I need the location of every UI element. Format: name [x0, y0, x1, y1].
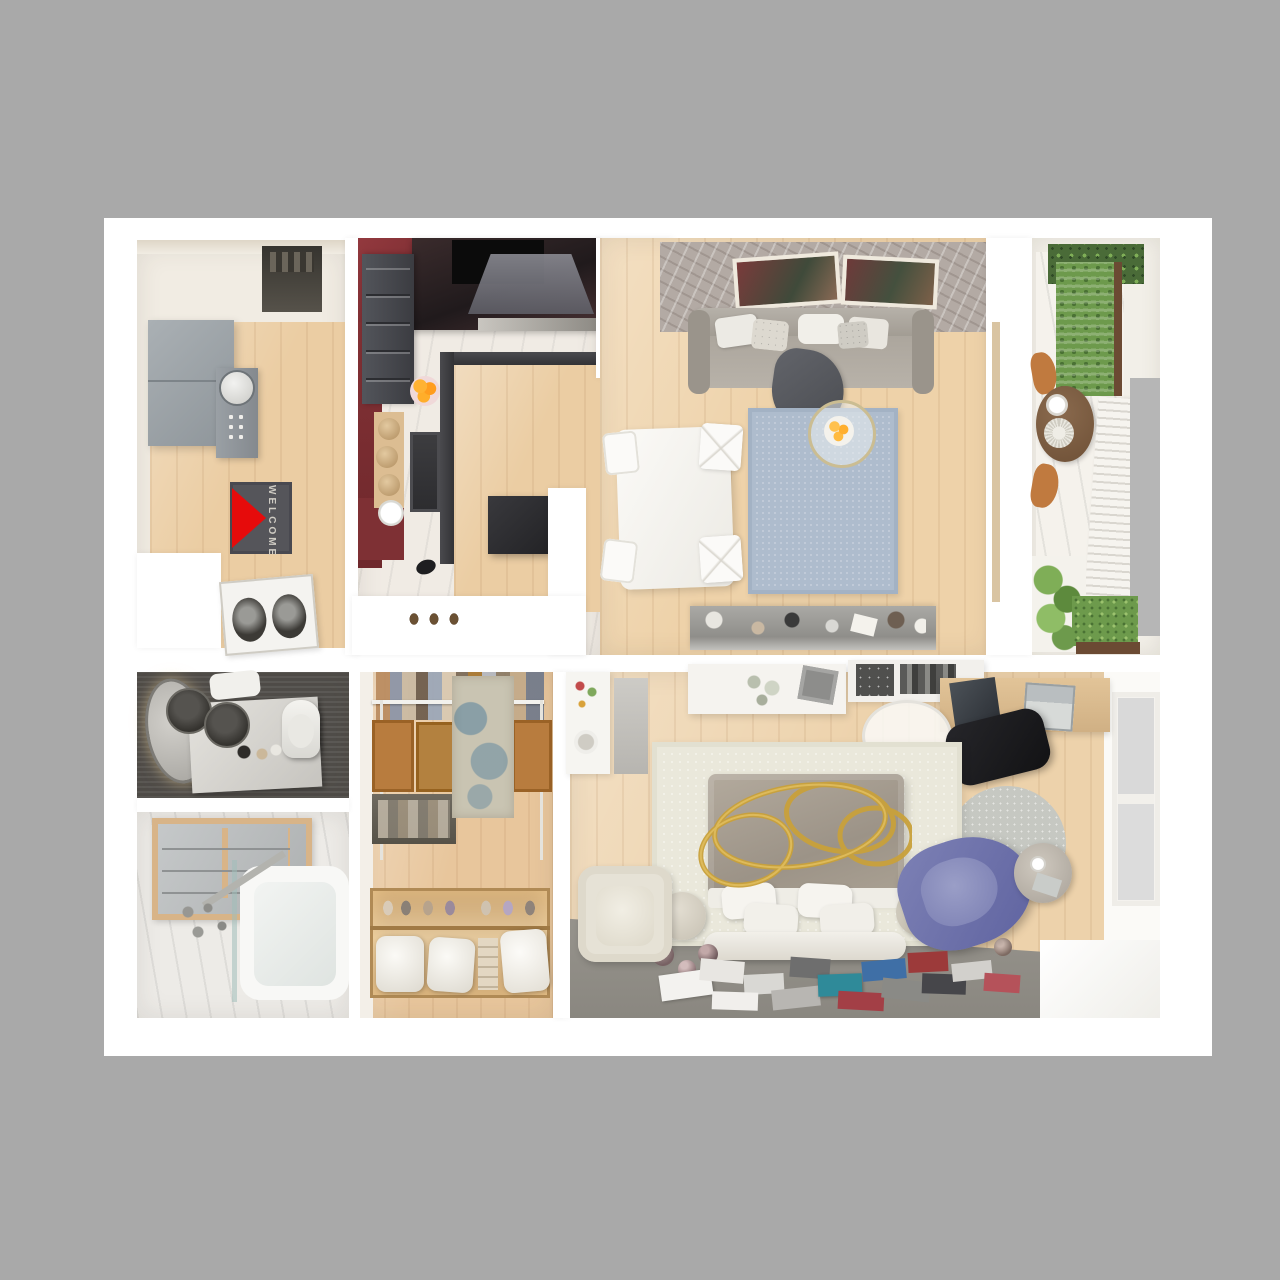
crate-2 — [416, 722, 456, 792]
shelf-photos — [856, 664, 894, 696]
toilet-seat — [288, 714, 314, 748]
dresser-flowers — [742, 670, 790, 710]
crate-1 — [372, 720, 414, 792]
wardrobe-rug — [452, 676, 514, 818]
bedroom-window — [1112, 692, 1160, 906]
pillow-cubby-3 — [499, 928, 550, 994]
dresser-tray-cloth — [797, 665, 838, 705]
bath-faucet — [178, 898, 236, 950]
window-pane-2 — [1118, 802, 1154, 900]
magazine-2 — [699, 958, 745, 984]
magazine-8 — [838, 991, 885, 1011]
tub-inner — [254, 882, 336, 986]
window-mullion — [1118, 794, 1154, 804]
console-plate — [574, 730, 598, 754]
crate-3 — [512, 720, 552, 792]
gray-bench-mat — [614, 678, 648, 774]
marble-side-table — [1014, 843, 1072, 903]
shoe-row — [376, 894, 544, 922]
magazine-11 — [908, 951, 949, 973]
magazine-14 — [983, 973, 1020, 993]
shelf-clothes — [378, 800, 450, 838]
glass-ball-4 — [994, 938, 1012, 956]
floor-plan-render: WELCOME — [0, 0, 1280, 1280]
folded-stack — [478, 938, 498, 990]
window-light-floor — [1040, 940, 1160, 1018]
console-flowers — [572, 678, 602, 718]
pillow-cubby-1 — [376, 936, 424, 992]
vanity-decor — [236, 742, 282, 764]
table-cup — [1030, 856, 1046, 872]
armchair-cushion — [596, 886, 654, 946]
magazine-4 — [712, 991, 759, 1011]
pillow-cubby-2 — [426, 936, 476, 993]
gold-ring-chandelier — [688, 778, 912, 896]
bathroom-mid-wall — [137, 798, 349, 812]
bed-headboard-bench — [704, 932, 906, 960]
window-pane-1 — [1118, 698, 1154, 796]
bath-towels — [209, 669, 261, 700]
bottom-section — [0, 0, 1280, 1280]
